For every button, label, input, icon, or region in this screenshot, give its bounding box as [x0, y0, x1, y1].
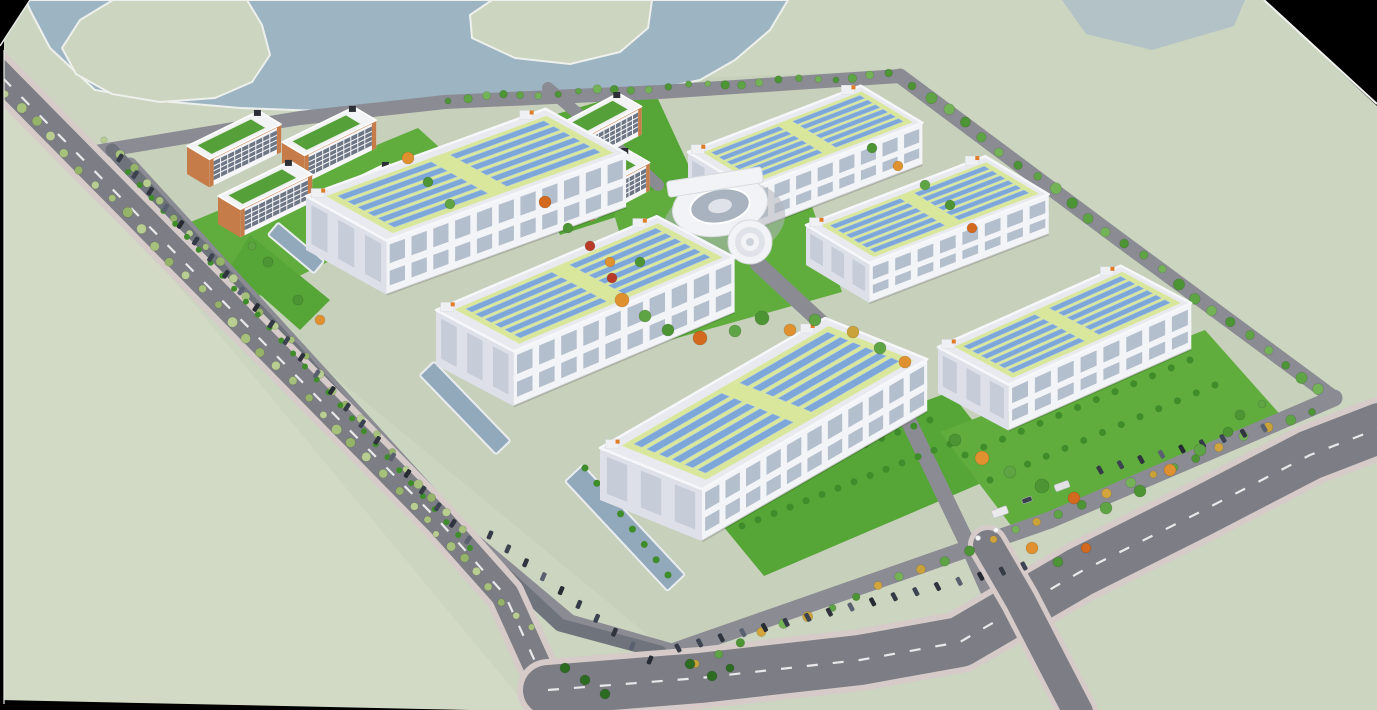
tree [899, 356, 911, 368]
tree [665, 83, 672, 90]
hedge-shrub [819, 491, 826, 498]
hedge-shrub [443, 519, 449, 525]
office-pier [209, 157, 213, 187]
rooftop-unit [613, 92, 620, 98]
tree [227, 317, 237, 327]
tree [32, 116, 42, 126]
tree [940, 556, 950, 566]
hedge-shrub [243, 299, 249, 305]
tree [1035, 479, 1049, 493]
hedge-shrub [1099, 429, 1106, 436]
tree [379, 469, 388, 478]
tree [693, 331, 707, 345]
tree [459, 526, 467, 534]
tree [156, 197, 164, 205]
roof-vent-accent [952, 339, 956, 343]
hedge-shrub [899, 459, 906, 466]
tree [17, 103, 27, 113]
tree [1102, 488, 1112, 498]
hedge-shrub [1018, 428, 1025, 435]
tree [848, 74, 857, 83]
scene-svg [0, 0, 1377, 710]
tree [272, 361, 281, 370]
tree [396, 487, 404, 495]
tree [707, 671, 717, 681]
tree [59, 149, 68, 158]
tree [484, 583, 492, 591]
hedge-shrub [349, 415, 355, 421]
tree [1308, 408, 1315, 415]
tree [1081, 543, 1091, 553]
hedge-shrub [915, 453, 922, 460]
tree [607, 273, 617, 283]
tree [736, 638, 745, 647]
tree [255, 348, 264, 357]
tree [1223, 427, 1233, 437]
hedge-shrub [980, 444, 987, 451]
tree [1120, 239, 1129, 248]
hedge-shrub [931, 447, 938, 454]
tree [605, 257, 615, 267]
factory-side-window [493, 346, 509, 394]
tree [498, 599, 505, 606]
hedge-shrub [665, 572, 672, 579]
hedge-shrub [582, 465, 589, 472]
tree [1012, 526, 1020, 534]
hedge-shrub [1193, 389, 1200, 396]
hedge-shrub [137, 182, 143, 188]
tree [516, 91, 523, 98]
tree [165, 258, 174, 267]
hedge-shrub [653, 556, 660, 563]
tree [1050, 183, 1061, 194]
tree [402, 152, 414, 164]
hedge-shrub [962, 452, 969, 459]
gate-post [976, 536, 981, 541]
tree [1286, 415, 1296, 425]
tree [755, 79, 763, 87]
hedge-shrub [302, 363, 308, 369]
tree [442, 508, 450, 516]
roof-vent-accent [530, 111, 534, 115]
tree [615, 293, 629, 307]
tree [784, 324, 796, 336]
tree [1004, 466, 1016, 478]
hedge-shrub [787, 504, 794, 511]
tree [331, 424, 341, 434]
hedge-shrub [1174, 397, 1181, 404]
office-pier [638, 107, 642, 137]
tree [203, 244, 209, 250]
roof-vent-accent [616, 440, 620, 444]
tree [1026, 542, 1038, 554]
hedge-shrub [1118, 421, 1125, 428]
roof-vent-accent [1110, 267, 1114, 271]
hedge-shrub [184, 234, 190, 240]
hedge-shrub [1155, 405, 1162, 412]
hedge-shrub [1149, 372, 1156, 379]
tree [248, 242, 256, 250]
tree [1054, 510, 1063, 519]
tree [977, 132, 987, 142]
hedge-shrub [851, 478, 858, 485]
tree [423, 177, 433, 187]
tree [1235, 410, 1245, 420]
hedge-shrub [1024, 461, 1031, 468]
hedge-shrub [835, 485, 842, 492]
hedge-shrub [739, 523, 746, 530]
tree [926, 92, 937, 103]
hedge-shrub [1187, 357, 1194, 364]
tree [775, 76, 782, 83]
tree [726, 664, 734, 672]
tree [990, 536, 997, 543]
hedge-shrub [255, 312, 261, 318]
tree [627, 87, 635, 95]
tree [847, 326, 859, 338]
tree [482, 91, 490, 99]
render-viewport [0, 0, 1377, 710]
tree [181, 271, 189, 279]
hedge-shrub [629, 526, 636, 533]
roof-vent-accent [975, 156, 979, 160]
tree [908, 82, 916, 90]
tree [916, 565, 925, 574]
hedge-shrub [396, 467, 402, 473]
tree [960, 117, 970, 127]
tree [216, 257, 225, 266]
tree [645, 86, 652, 93]
tree [975, 451, 989, 465]
roof-vent-accent [643, 219, 647, 223]
tree [1100, 502, 1112, 514]
tree [1245, 330, 1254, 339]
tree [320, 411, 327, 418]
tree [560, 663, 570, 673]
tree [46, 131, 55, 140]
hedge-shrub [593, 480, 600, 487]
hedge-shrub [1043, 453, 1050, 460]
hedge-shrub [196, 247, 202, 253]
tree [895, 572, 904, 581]
rooftop-unit [349, 106, 356, 112]
gate-post [994, 528, 999, 533]
tree [143, 179, 151, 187]
tree [1282, 361, 1290, 369]
hedge-shrub [910, 423, 917, 430]
tree [662, 324, 674, 336]
hedge-shrub [467, 545, 473, 551]
hedge-shrub [987, 477, 994, 484]
tree [1083, 213, 1093, 223]
tree [447, 542, 456, 551]
hedge-shrub [1062, 445, 1069, 452]
tree [563, 223, 573, 233]
tree [464, 94, 473, 103]
tree [150, 242, 159, 251]
tree [635, 257, 645, 267]
tree [755, 311, 769, 325]
tree [580, 675, 590, 685]
hedge-shrub [290, 351, 296, 357]
tree [994, 148, 1003, 157]
tree [263, 257, 273, 267]
roof-vent-accent [819, 218, 823, 222]
tree [123, 207, 133, 217]
tree [539, 196, 551, 208]
office-pier [240, 207, 244, 237]
tree [967, 223, 977, 233]
tree [535, 92, 542, 99]
tree [1034, 172, 1042, 180]
hedge-shrub [771, 510, 778, 517]
tree [199, 285, 207, 293]
tree [1258, 400, 1266, 408]
tree [865, 71, 873, 79]
tree [424, 516, 431, 523]
tree [729, 325, 741, 337]
tree [1140, 251, 1149, 260]
tree [445, 98, 451, 104]
tree [852, 593, 860, 601]
tree [1296, 372, 1307, 383]
tree [1164, 464, 1176, 476]
hedge-shrub [1074, 404, 1081, 411]
hedge-shrub [1080, 437, 1087, 444]
tree [500, 90, 508, 98]
tree [600, 689, 610, 699]
tree [1158, 265, 1166, 273]
tree [109, 195, 116, 202]
hedge-shrub [883, 466, 890, 473]
hedge-shrub [1212, 382, 1219, 389]
tree [528, 624, 534, 630]
tree [241, 334, 251, 344]
hedge-shrub [617, 510, 624, 517]
tree [1206, 306, 1216, 316]
tree [101, 137, 107, 143]
tree [555, 91, 562, 98]
tree [1014, 161, 1023, 170]
tree [91, 181, 99, 189]
tree [815, 76, 822, 83]
hedge-shrub [125, 169, 131, 175]
tree [1067, 198, 1078, 209]
tree [944, 104, 955, 115]
rooftop-unit [254, 110, 261, 116]
tree [1126, 478, 1136, 488]
tree [721, 81, 730, 90]
tree [705, 81, 711, 87]
tree [737, 81, 745, 89]
office-pier [646, 163, 650, 193]
tree [414, 480, 423, 489]
tree [685, 659, 695, 669]
tree [795, 75, 802, 82]
hedge-shrub [1055, 412, 1062, 419]
hedge-shrub [337, 402, 343, 408]
tree [885, 69, 893, 77]
tree [1150, 471, 1157, 478]
tree [945, 200, 955, 210]
tree [593, 85, 602, 94]
tree [1214, 443, 1223, 452]
tree [75, 166, 83, 174]
tree [715, 650, 723, 658]
tree [1264, 346, 1273, 355]
tree [445, 199, 455, 209]
hedge-shrub [149, 195, 155, 201]
tree [1173, 279, 1184, 290]
hedge-shrub [1137, 413, 1144, 420]
roof-vent-accent [851, 85, 855, 89]
tree [874, 581, 882, 589]
tree [893, 161, 903, 171]
tree [410, 503, 418, 511]
tree [293, 295, 303, 305]
tree [1194, 444, 1206, 456]
hedge-shrub [455, 532, 461, 538]
hedge-shrub [803, 497, 810, 504]
tree [874, 342, 886, 354]
tree [867, 143, 877, 153]
roof-vent-accent [321, 189, 325, 193]
tree [920, 180, 930, 190]
hedge-shrub [867, 472, 874, 479]
hedge-shrub [1112, 388, 1119, 395]
office-pier [372, 120, 376, 150]
tree [362, 452, 371, 461]
tree [460, 554, 469, 563]
tree [1053, 557, 1063, 567]
tree [1134, 485, 1146, 497]
tree [305, 394, 313, 402]
tree [1100, 227, 1110, 237]
roof-vent-accent [451, 302, 455, 306]
hedge-shrub [408, 480, 414, 486]
tree [964, 546, 974, 556]
hedge-shrub [641, 541, 648, 548]
factory-side-window [441, 319, 457, 367]
factory-side-window [467, 333, 483, 381]
tree [1033, 518, 1041, 526]
tree [427, 493, 436, 502]
tree [315, 315, 325, 325]
roof-vent-accent [701, 145, 705, 149]
hedge-shrub [1037, 420, 1044, 427]
hedge-shrub [755, 516, 762, 523]
hedge-shrub [1168, 364, 1175, 371]
hedge-shrub [231, 286, 237, 292]
tree [685, 81, 692, 88]
tree [513, 612, 520, 619]
tree [1225, 317, 1235, 327]
hedge-shrub [999, 436, 1006, 443]
tree [809, 314, 821, 326]
round-tower-ring [746, 238, 754, 246]
tree [639, 310, 651, 322]
hedge-shrub [361, 428, 367, 434]
hedge-shrub [927, 417, 934, 424]
tree [215, 301, 222, 308]
tree [575, 88, 581, 94]
tree [585, 241, 595, 251]
hedge-shrub [1130, 380, 1137, 387]
tree [229, 274, 238, 283]
tree [1068, 492, 1080, 504]
tree [137, 224, 147, 234]
tree [833, 77, 839, 83]
office-pier [277, 124, 281, 154]
tree [170, 215, 177, 222]
tree [949, 434, 961, 446]
hedge-shrub [1093, 396, 1100, 403]
tree [472, 567, 480, 575]
tree [1313, 384, 1324, 395]
tree [289, 377, 297, 385]
tree [346, 438, 356, 448]
tree [433, 531, 439, 537]
rooftop-unit [285, 160, 292, 166]
